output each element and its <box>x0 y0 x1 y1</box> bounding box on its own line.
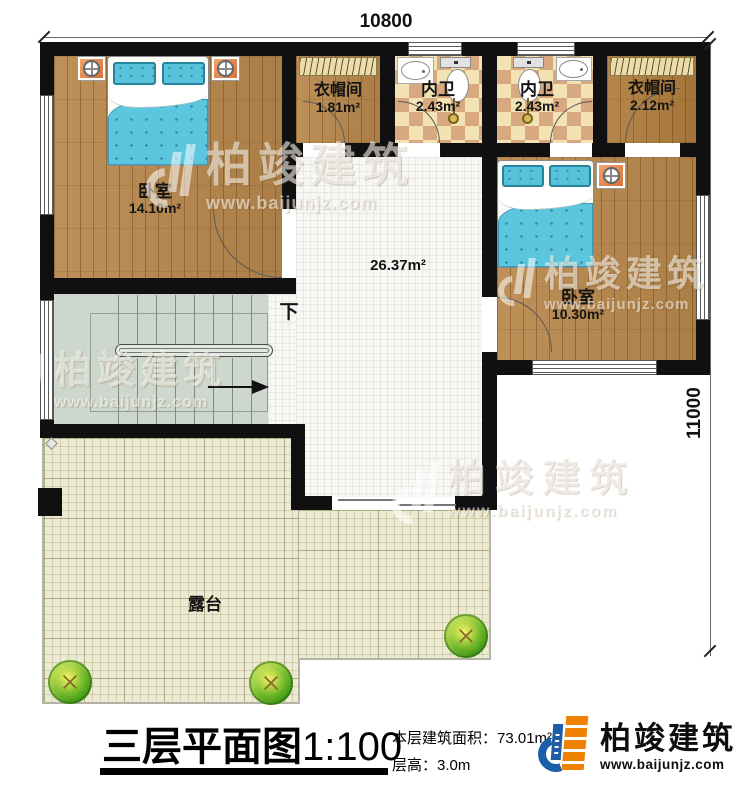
room-name: 衣帽间 <box>610 80 694 98</box>
closet-hatch-cloakroom2 <box>610 57 694 76</box>
wall-top <box>40 42 710 56</box>
wall-band-seg1 <box>282 143 303 157</box>
terrace-edge-right <box>489 510 491 660</box>
toilet-tank-icon <box>513 57 544 68</box>
wall-hall-right-horz <box>455 496 497 510</box>
window-bedroom2-right <box>696 195 710 320</box>
floor-height-label: 层高： <box>392 757 437 774</box>
bathroom2-label: 内卫 2.43m² <box>497 80 577 115</box>
wall-bath2-cloak2 <box>593 42 607 157</box>
lamp-icon <box>217 60 234 77</box>
bed <box>107 56 209 166</box>
plant-icon <box>444 614 488 658</box>
floor-height-value: 3.0m <box>437 757 470 774</box>
sink-icon <box>401 61 430 80</box>
nightstand <box>597 163 625 188</box>
room-name: 衣帽间 <box>299 82 377 100</box>
wall-band-seg2 <box>345 143 398 157</box>
floor-plan: 卧室 14.10m² 衣帽间 1.81m² 内卫 2.43m² 内卫 2.43m… <box>0 0 750 792</box>
terrace-door-line-a <box>338 499 396 501</box>
bedroom1-label: 卧室 14.10m² <box>105 182 205 217</box>
wall-bedroom1-right <box>282 42 296 209</box>
stairs-down-text: 下 <box>274 302 304 323</box>
wall-stairs-bottom <box>40 424 305 438</box>
floor-area-text: 本层建筑面积：73.01m² <box>392 727 552 748</box>
floor-area-label: 本层建筑面积： <box>392 730 497 747</box>
brand-name: 柏竣建筑 <box>600 723 736 754</box>
room-name: 卧室 <box>105 182 205 201</box>
room-area: 2.43m² <box>497 99 577 115</box>
terrace-label: 露台 <box>168 595 242 614</box>
plan-title: 三层平面图1:100 <box>102 714 402 772</box>
lamp-icon <box>83 60 100 77</box>
window-bedroom2-bottom <box>532 360 657 375</box>
window-stairs <box>40 300 54 420</box>
room-area: 2.12m² <box>610 98 694 114</box>
top-dimension-label: 10800 <box>348 11 424 33</box>
structural-column <box>38 488 62 516</box>
room-name: 内卫 <box>397 80 479 99</box>
bed <box>497 160 594 268</box>
room-name: 卧室 <box>528 288 628 307</box>
floor-height-text: 层高：3.0m <box>392 754 470 775</box>
bedroom2-label: 卧室 10.30m² <box>528 288 628 323</box>
blanket <box>108 99 208 165</box>
closet-hatch-cloakroom1 <box>299 57 377 76</box>
stair-direction-arrow <box>208 386 256 388</box>
wall-cloak1-bath1 <box>380 56 395 143</box>
wall-bedroom2-bottom-b <box>657 360 710 375</box>
terrace-floor <box>44 438 298 702</box>
hall-floor <box>296 157 482 497</box>
nightstand <box>78 57 105 80</box>
pillow <box>549 165 591 187</box>
stair-arrow-head-icon <box>252 380 269 394</box>
dimension-line-right <box>710 44 711 656</box>
wall-spine-top <box>482 42 497 157</box>
brand-logo: 柏竣建筑 www.baijunjz.com <box>538 712 736 782</box>
plant-icon <box>249 661 293 705</box>
window-bathroom2 <box>517 42 575 56</box>
terrace-edge-left <box>42 438 44 704</box>
bathroom1-label: 内卫 2.43m² <box>397 80 479 115</box>
plan-title-underline <box>100 768 388 775</box>
lamp-icon <box>603 167 620 184</box>
pillow <box>113 62 156 85</box>
brand-website: www.baijunjz.com <box>600 758 736 772</box>
room-area: 2.43m² <box>397 99 479 115</box>
window-bathroom1 <box>408 42 462 56</box>
room-name: 露台 <box>168 595 242 614</box>
terrace-door-line-b <box>398 504 456 506</box>
terrace-edge-step-h <box>298 658 491 660</box>
room-name: 内卫 <box>497 80 577 99</box>
plan-title-text: 三层平面图 <box>102 725 302 769</box>
down-label: 下 <box>274 302 304 323</box>
room-area: 10.30m² <box>528 307 628 323</box>
room-area: 26.37m² <box>348 258 448 275</box>
toilet-tank-icon <box>440 57 471 68</box>
wall-bedroom2-bottom-a <box>482 360 532 375</box>
room-area: 1.81m² <box>299 100 377 116</box>
stair-treads-upper <box>118 295 268 344</box>
right-dimension-label: 11000 <box>684 380 706 446</box>
stair-treads-lower <box>118 358 268 424</box>
cloakroom2-label: 衣帽间 2.12m² <box>610 80 694 114</box>
nightstand <box>212 57 239 80</box>
wall-hall-left-horz <box>291 496 332 510</box>
wall-spine-low <box>482 373 497 510</box>
wall-bedroom1-bottom <box>40 278 296 294</box>
window-bedroom1 <box>40 95 54 215</box>
logo-glyph-icon <box>538 712 592 782</box>
wall-spine-mid <box>482 157 497 297</box>
hall-area-label: 26.37m² <box>348 258 448 275</box>
stair-handrail <box>115 344 273 357</box>
pillow <box>162 62 205 85</box>
plant-icon <box>48 660 92 704</box>
plan-scale-text: 1:100 <box>302 725 402 769</box>
terrace-edge-step-v <box>298 658 300 704</box>
room-area: 14.10m² <box>105 201 205 217</box>
pillow <box>502 165 544 187</box>
cloakroom1-label: 衣帽间 1.81m² <box>299 82 377 116</box>
wall-band-seg5 <box>680 143 710 157</box>
blanket <box>498 203 593 267</box>
dimension-line-top <box>44 37 708 38</box>
sink-icon <box>559 60 588 78</box>
